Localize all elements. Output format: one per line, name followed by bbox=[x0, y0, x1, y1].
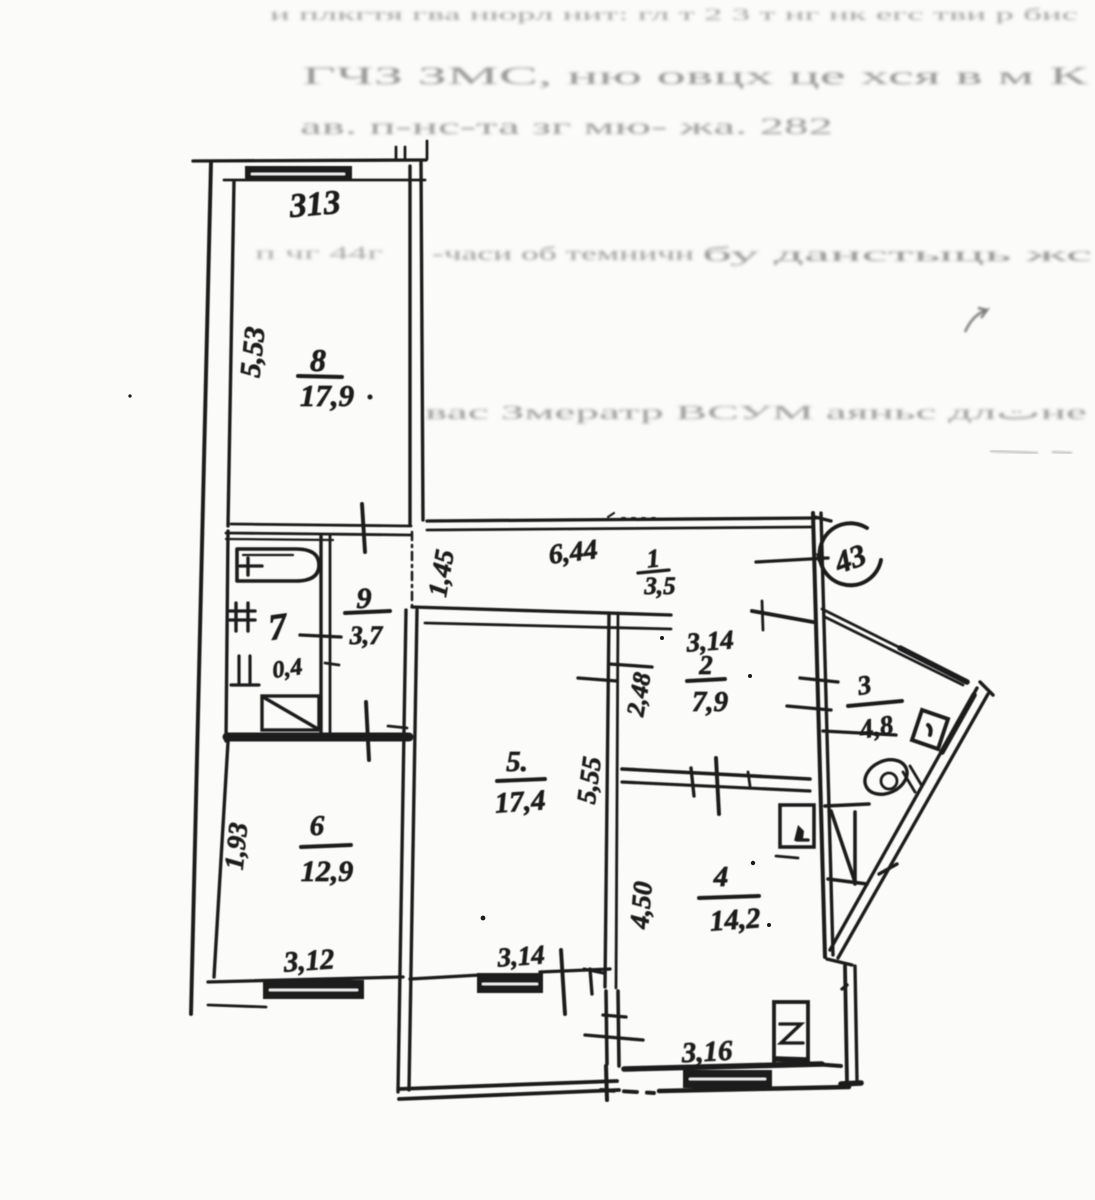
svg-text:8: 8 bbox=[310, 342, 326, 378]
svg-text:1,93: 1,93 bbox=[219, 821, 254, 871]
svg-text:и плкгтя гва нюрл нит: гл т 2: и плкгтя гва нюрл нит: гл т 2 3 т нг нк … bbox=[270, 5, 1079, 24]
svg-text:313: 313 bbox=[287, 184, 342, 225]
svg-text:7,9: 7,9 bbox=[692, 686, 728, 718]
svg-text:5.: 5. bbox=[506, 746, 528, 778]
svg-text:п чг 44г: п чг 44г bbox=[255, 243, 383, 263]
svg-text:14,2: 14,2 bbox=[709, 902, 762, 937]
svg-text:6,44: 6,44 bbox=[547, 534, 599, 571]
svg-text:вас Змератр ВСУМ аяньс длتн: вас Змератр ВСУМ аяньс длتне bbox=[425, 402, 1087, 424]
svg-text:-часи об темничн: -часи об темничн bbox=[432, 244, 694, 265]
svg-text:3,7: 3,7 bbox=[349, 621, 384, 650]
svg-text:4,8: 4,8 bbox=[856, 709, 896, 745]
svg-text:3,14: 3,14 bbox=[495, 939, 545, 972]
svg-text:ГЧЗ ЗМС, ню овцх це хся в: ГЧЗ ЗМС, ню овцх це хся в м К bbox=[302, 63, 1089, 90]
svg-text:4,50: 4,50 bbox=[624, 880, 658, 931]
svg-text:4: 4 bbox=[713, 861, 729, 893]
svg-text:17,4: 17,4 bbox=[494, 784, 547, 819]
svg-text:3,12: 3,12 bbox=[282, 943, 336, 979]
svg-text:6: 6 bbox=[310, 810, 325, 842]
svg-text:3,5: 3,5 bbox=[643, 573, 675, 600]
svg-text:5,53: 5,53 bbox=[234, 325, 271, 379]
svg-text:бу данстыць жс: бу данстыць жс bbox=[702, 244, 1092, 266]
svg-text:3,16: 3,16 bbox=[680, 1035, 734, 1070]
svg-text:2: 2 bbox=[698, 650, 713, 680]
svg-text:0,4: 0,4 bbox=[271, 654, 304, 684]
svg-text:17,9: 17,9 bbox=[300, 378, 354, 413]
svg-text:ав. п-нс-та зг мю- жа. 282: ав. п-нс-та зг мю- жа. 282 bbox=[300, 114, 833, 139]
svg-text:12,9: 12,9 bbox=[301, 855, 354, 888]
